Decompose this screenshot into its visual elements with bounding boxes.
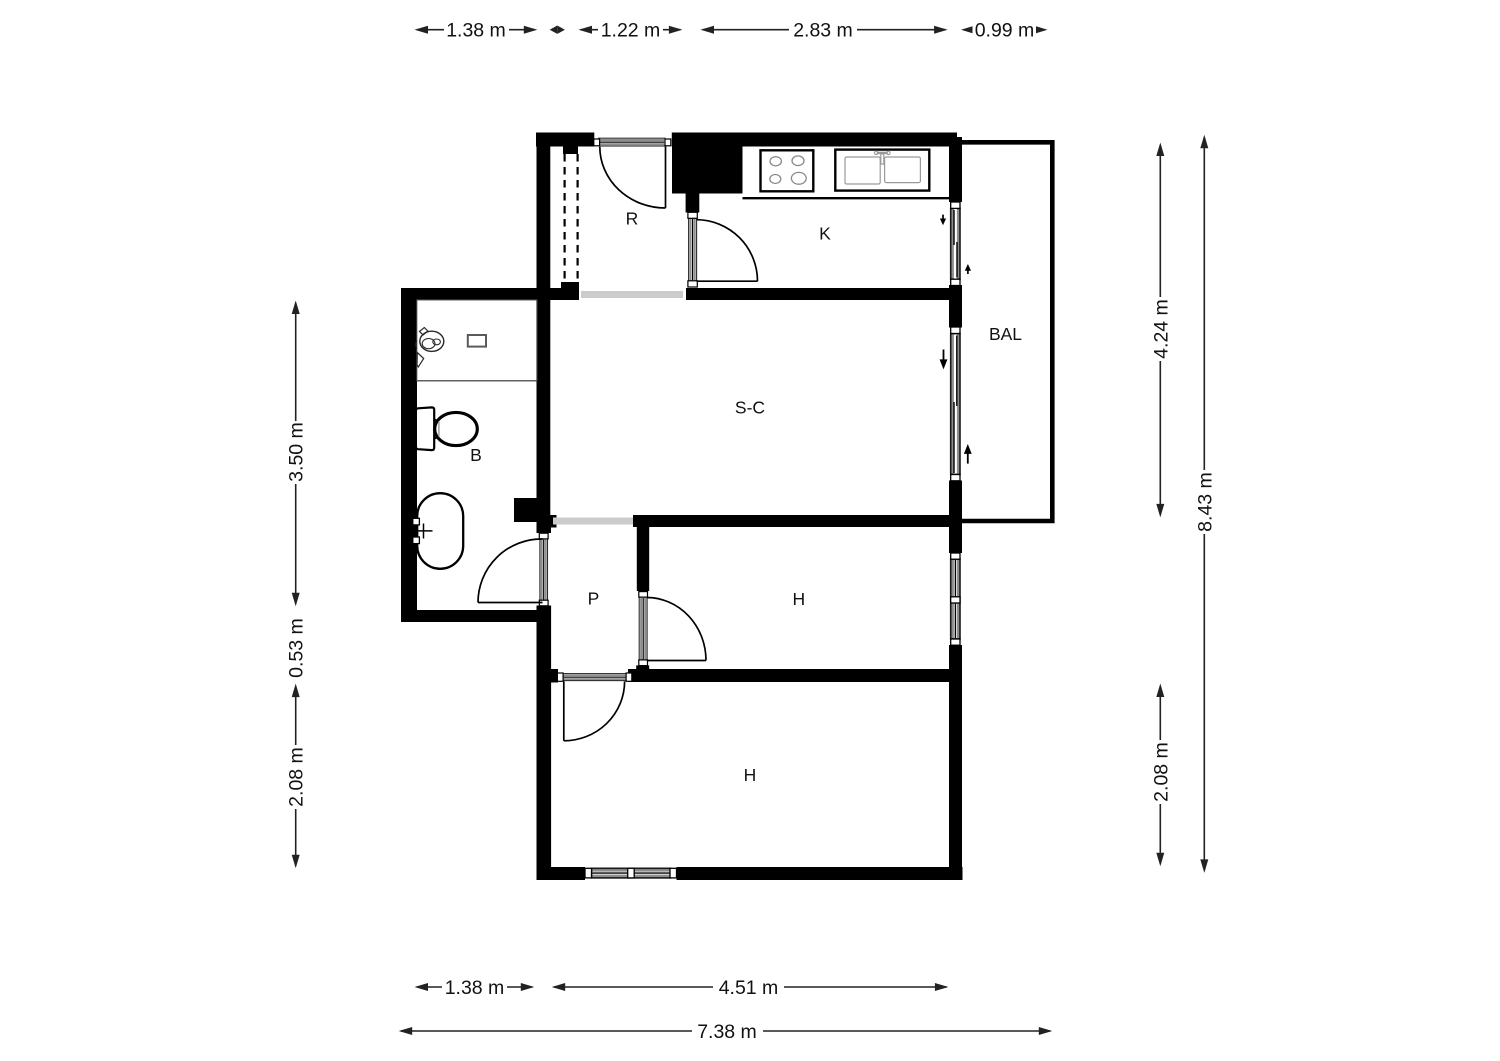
svg-text:3.50 m: 3.50 m bbox=[286, 422, 308, 482]
svg-text:S-C: S-C bbox=[735, 398, 765, 418]
svg-text:2.08 m: 2.08 m bbox=[1150, 742, 1172, 802]
svg-text:K: K bbox=[819, 224, 831, 244]
svg-text:7.38 m: 7.38 m bbox=[697, 1021, 757, 1043]
svg-text:H: H bbox=[744, 765, 757, 785]
svg-text:2.83 m: 2.83 m bbox=[793, 20, 853, 42]
svg-text:4.24 m: 4.24 m bbox=[1150, 299, 1172, 359]
svg-text:B: B bbox=[470, 445, 482, 465]
svg-text:1.38 m: 1.38 m bbox=[445, 977, 505, 999]
svg-text:1.38 m: 1.38 m bbox=[446, 20, 506, 42]
svg-text:H: H bbox=[792, 589, 805, 609]
svg-text:1.22 m: 1.22 m bbox=[601, 20, 661, 42]
svg-text:8.43 m: 8.43 m bbox=[1194, 472, 1216, 532]
svg-text:0.99 m: 0.99 m bbox=[975, 20, 1035, 42]
svg-text:4.51 m: 4.51 m bbox=[719, 977, 779, 999]
svg-text:BAL: BAL bbox=[989, 324, 1022, 344]
svg-text:P: P bbox=[588, 589, 600, 609]
svg-text:R: R bbox=[626, 209, 639, 229]
svg-text:2.08 m: 2.08 m bbox=[286, 747, 308, 807]
svg-text:0.53 m: 0.53 m bbox=[286, 618, 308, 678]
